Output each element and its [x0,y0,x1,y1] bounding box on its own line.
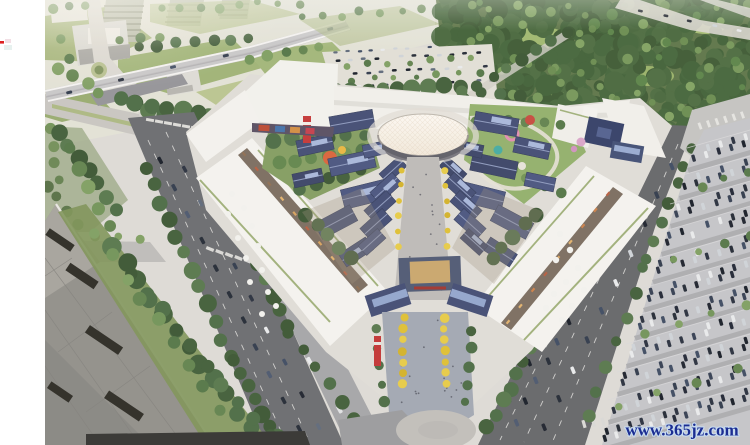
svg-text:www.365jz.com: www.365jz.com [625,421,738,440]
